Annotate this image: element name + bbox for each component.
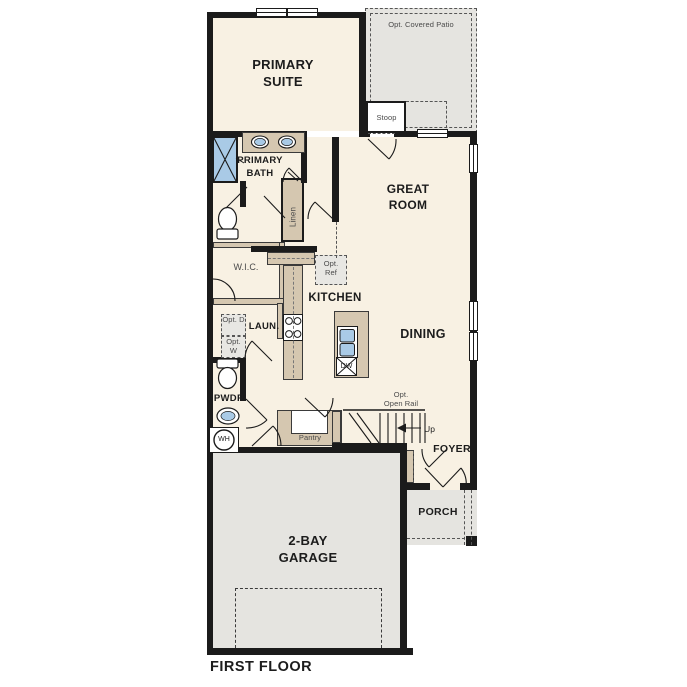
open-rail-label-2: Open Rail: [375, 399, 427, 408]
water-heater-label: WH: [212, 436, 236, 445]
pantry-label: Pantry: [294, 433, 326, 442]
patio-label: Opt. Covered Patio: [377, 20, 465, 29]
wic-label: W.I.C.: [222, 262, 270, 273]
dining-label: DINING: [393, 326, 453, 343]
garage-label: 2-BAY GARAGE: [268, 532, 348, 566]
opt-dryer-label: Opt. D: [222, 315, 245, 324]
stove-burners: [286, 318, 301, 338]
primary-bath-label: PRIMARY BATH: [226, 155, 294, 180]
floor-plan: PRIMARY SUITE Opt. Covered Patio Stoop P…: [0, 0, 687, 687]
plan-title: FIRST FLOOR: [210, 658, 350, 677]
open-rail-label-1: Opt.: [375, 390, 427, 399]
linen-label: Linen: [289, 193, 301, 242]
kitchen-label: KITCHEN: [305, 291, 365, 306]
powder-label: PWDR: [210, 393, 248, 406]
porch-label: PORCH: [414, 506, 462, 520]
up-label: Up: [424, 424, 442, 435]
opt-washer-label: Opt. W: [222, 337, 245, 356]
opt-ref-label: Opt. Ref: [318, 259, 344, 278]
plan-linework: [0, 0, 687, 687]
bath-toilet: [217, 208, 238, 240]
stoop-label: Stoop: [368, 113, 405, 122]
stairs: [343, 410, 425, 443]
foyer-label: FOYER: [430, 443, 474, 457]
dishwasher-label: DW: [336, 363, 357, 372]
laundry-label: LAUN.: [247, 321, 281, 334]
up-arrow-icon: [397, 424, 406, 433]
vanity-sinks: [252, 136, 296, 148]
great-room-label: GREAT ROOM: [377, 182, 439, 214]
powder-sink: [217, 408, 239, 424]
island-sink-basins: [340, 330, 355, 357]
primary-suite-label: PRIMARY SUITE: [238, 56, 328, 90]
powder-toilet: [217, 359, 238, 389]
